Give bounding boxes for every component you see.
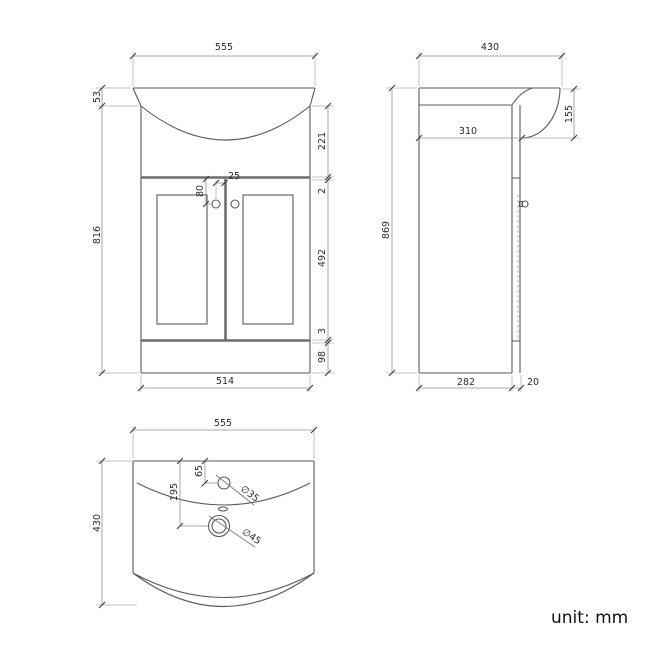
front-left-door-panel	[157, 195, 207, 324]
front-left-door-handle	[212, 200, 220, 208]
side-view: 430 155 310 869 282 20	[381, 42, 580, 392]
top-dimension-ticks	[99, 427, 317, 608]
top-view: 555 430 65 195 ∅35 ∅45	[92, 418, 317, 608]
top-tap-hole	[218, 477, 230, 489]
dim-side-door-thickness: 20	[527, 377, 539, 388]
dim-front-handle-drop: 80	[195, 185, 206, 197]
top-basin-bowl-arc	[137, 483, 310, 505]
front-right-door-handle	[231, 200, 239, 208]
dim-side-cabinet-depth: 282	[457, 377, 475, 388]
dim-front-door-height: 492	[317, 249, 328, 267]
dim-top-width: 555	[214, 418, 232, 429]
dim-top-tap-offset: 65	[194, 465, 205, 477]
dim-front-handle-inset: 25	[228, 171, 240, 182]
dim-side-total-height: 869	[381, 221, 392, 239]
front-right-door-panel	[243, 195, 293, 324]
side-extension-lines	[386, 52, 580, 392]
dim-front-overall-width: 555	[215, 42, 233, 53]
dim-top-drain-offset: 195	[169, 483, 180, 501]
technical-drawing-vanity-unit: 555 53 816 221 2 492 3 98 514 80 25 430 …	[0, 0, 650, 650]
dim-front-basin-depth: 221	[317, 132, 328, 150]
dim-side-depth-top: 430	[481, 42, 499, 53]
top-overflow-slot	[219, 507, 228, 511]
top-extension-lines	[96, 426, 314, 605]
dim-side-flat-depth: 310	[459, 126, 477, 137]
side-door-knob	[520, 201, 529, 207]
dim-front-rim-height: 53	[92, 91, 103, 103]
side-basin-outline	[419, 88, 560, 138]
side-dimension-ticks	[389, 53, 577, 391]
unit-note: unit: mm	[551, 608, 628, 628]
dim-side-basin-front-height: 155	[564, 105, 575, 123]
dim-front-top-gap: 2	[317, 188, 328, 194]
drawing-svg: 555 53 816 221 2 492 3 98 514 80 25 430 …	[0, 0, 650, 650]
dim-front-bottom-gap: 3	[317, 328, 328, 334]
top-dimension-lines	[102, 430, 314, 605]
dim-top-depth: 430	[92, 514, 103, 532]
dim-front-body-height: 816	[92, 226, 103, 244]
front-basin-outline	[133, 88, 315, 140]
front-view: 555 53 816 221 2 492 3 98 514 80 25	[92, 42, 334, 392]
dim-front-plinth-height: 98	[317, 351, 328, 363]
dim-front-bottom-width: 514	[216, 376, 234, 387]
top-worktop-outline	[133, 461, 314, 607]
